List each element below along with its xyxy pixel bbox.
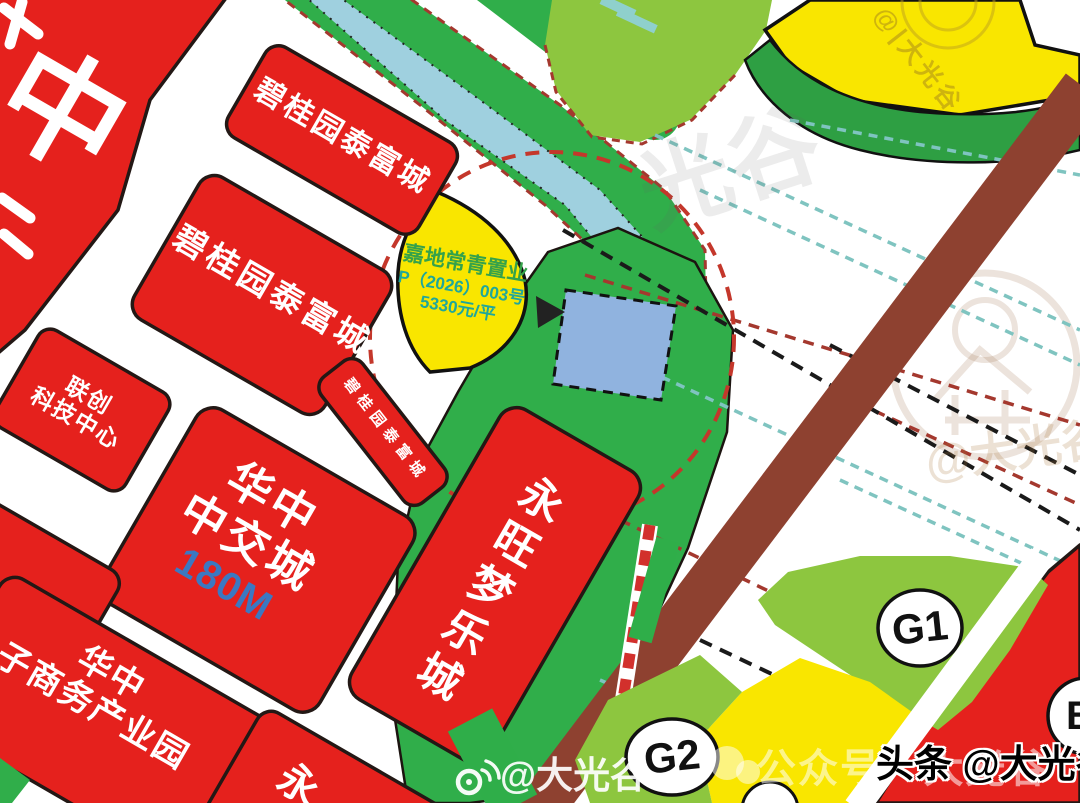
watermark-toutiao: 头条 @大光谷 bbox=[876, 744, 1080, 787]
g1-circle-label: G1 bbox=[876, 600, 964, 656]
watermark-weibo: @大光谷 bbox=[500, 755, 647, 796]
blue-parcel bbox=[553, 290, 676, 400]
b-circle-label-partial: B bbox=[1066, 694, 1080, 739]
planning-map-canvas: 中 碧桂园泰富城 碧桂园泰富城 碧桂园泰富城 联创 科技中心 华中 中交城 18… bbox=[0, 0, 1080, 803]
weibo-eye-dot bbox=[466, 779, 472, 785]
